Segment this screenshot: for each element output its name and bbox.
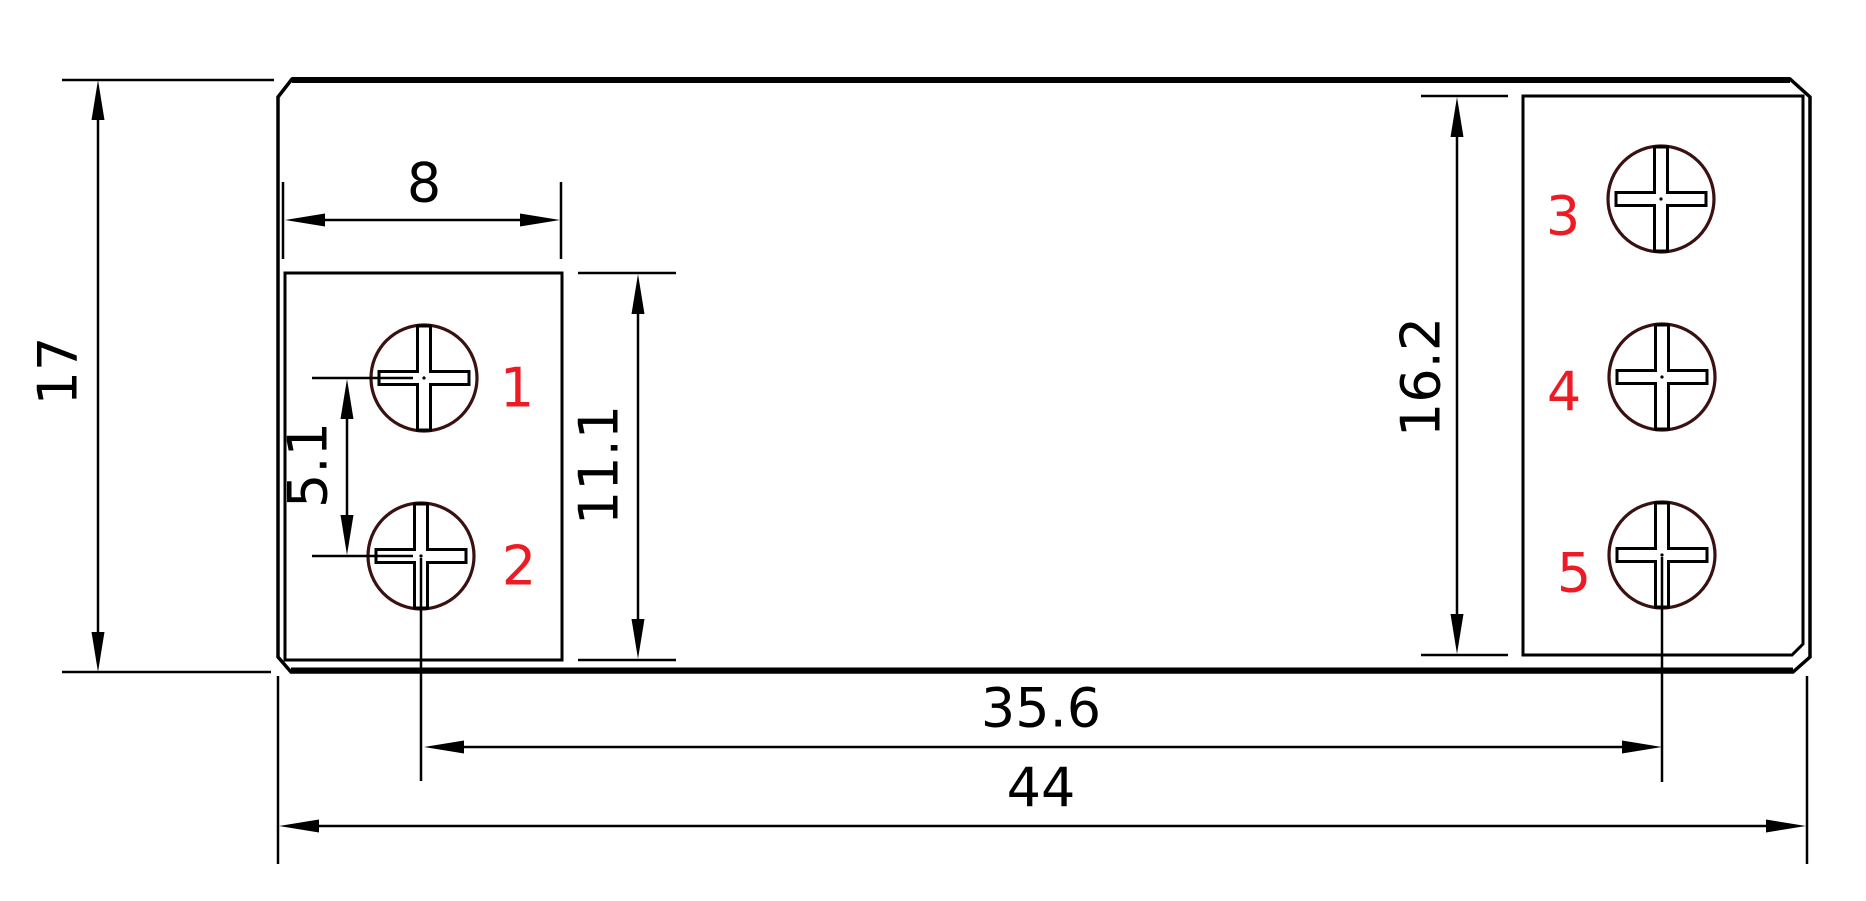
terminal-label-2: 2 — [502, 535, 536, 598]
dim-8-value: 8 — [407, 152, 441, 215]
dim-16-2-arrow-up — [1451, 97, 1464, 137]
screw-3-center-dot — [1659, 197, 1662, 200]
dim-35-6-value: 35.6 — [981, 677, 1101, 740]
dim-5-1-arrow-down — [341, 515, 354, 555]
dim-8-arrow-right — [520, 214, 560, 227]
dim-16-2-value: 16.2 — [1390, 317, 1453, 437]
terminal-label-5: 5 — [1557, 542, 1591, 605]
dim-17-arrow-down — [92, 632, 105, 672]
dim-8-arrow-left — [285, 214, 325, 227]
dim-11-1-arrow-down — [632, 619, 645, 659]
dim-11-1-arrow-up — [632, 274, 645, 314]
screw-4-icon — [1609, 324, 1715, 430]
terminal-label-4: 4 — [1547, 361, 1581, 424]
dim-5-1-value: 5.1 — [277, 422, 340, 508]
screw-2-center-dot — [419, 554, 422, 557]
dim-5-1-arrow-up — [341, 379, 354, 419]
screw-3-icon — [1608, 146, 1714, 252]
dim-17-arrow-up — [92, 80, 105, 120]
dim-44-arrow-left — [279, 820, 319, 833]
dimension-screw-pitch: 5.1 — [277, 379, 354, 555]
terminal-label-1: 1 — [500, 357, 534, 420]
dim-17-value: 17 — [27, 337, 90, 406]
screw-4-center-dot — [1660, 375, 1663, 378]
dimension-left-block-height: 11.1 — [568, 273, 677, 660]
screw-5-center-dot — [1660, 553, 1663, 556]
drawing-canvas: 17 8 5.1 11.1 16.2 35.6 — [0, 0, 1866, 901]
dim-16-2-arrow-down — [1451, 614, 1464, 654]
dim-11-1-value: 11.1 — [568, 405, 631, 525]
dim-35-6-arrow-right — [1622, 741, 1662, 754]
dimension-right-block-height: 16.2 — [1390, 96, 1509, 655]
dim-35-6-arrow-left — [424, 741, 464, 754]
screw-1-center-dot — [422, 376, 425, 379]
dimension-screw-span: 35.6 — [424, 677, 1662, 754]
dim-44-arrow-right — [1766, 820, 1806, 833]
dim-44-value: 44 — [1007, 757, 1076, 820]
dimension-overall-height: 17 — [27, 80, 275, 672]
terminal-label-3: 3 — [1546, 185, 1580, 248]
dimension-left-block-width: 8 — [283, 152, 561, 260]
